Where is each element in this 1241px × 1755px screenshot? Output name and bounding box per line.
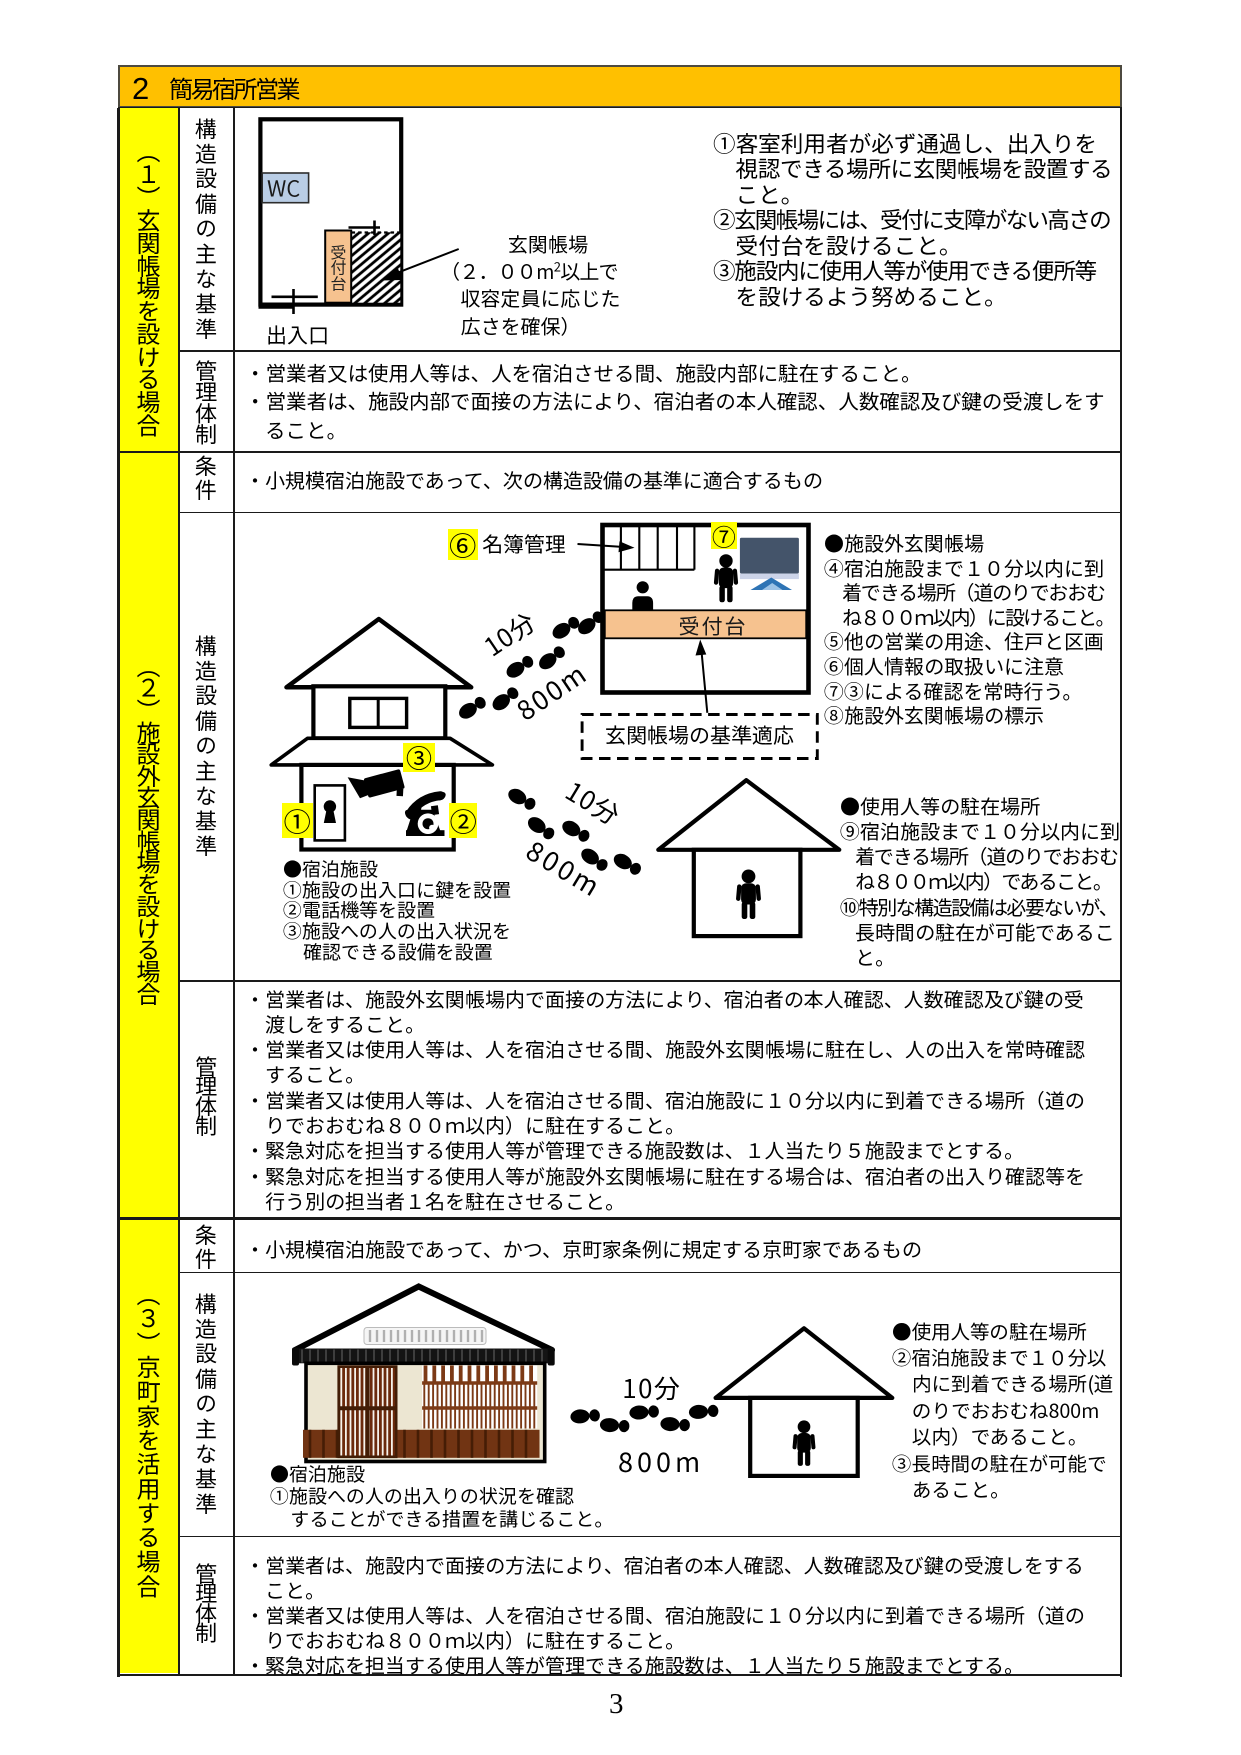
svg-text:10分: 10分 [476,602,543,664]
svg-text:WC: WC [267,172,300,204]
svg-text:800m: 800m [520,829,610,905]
